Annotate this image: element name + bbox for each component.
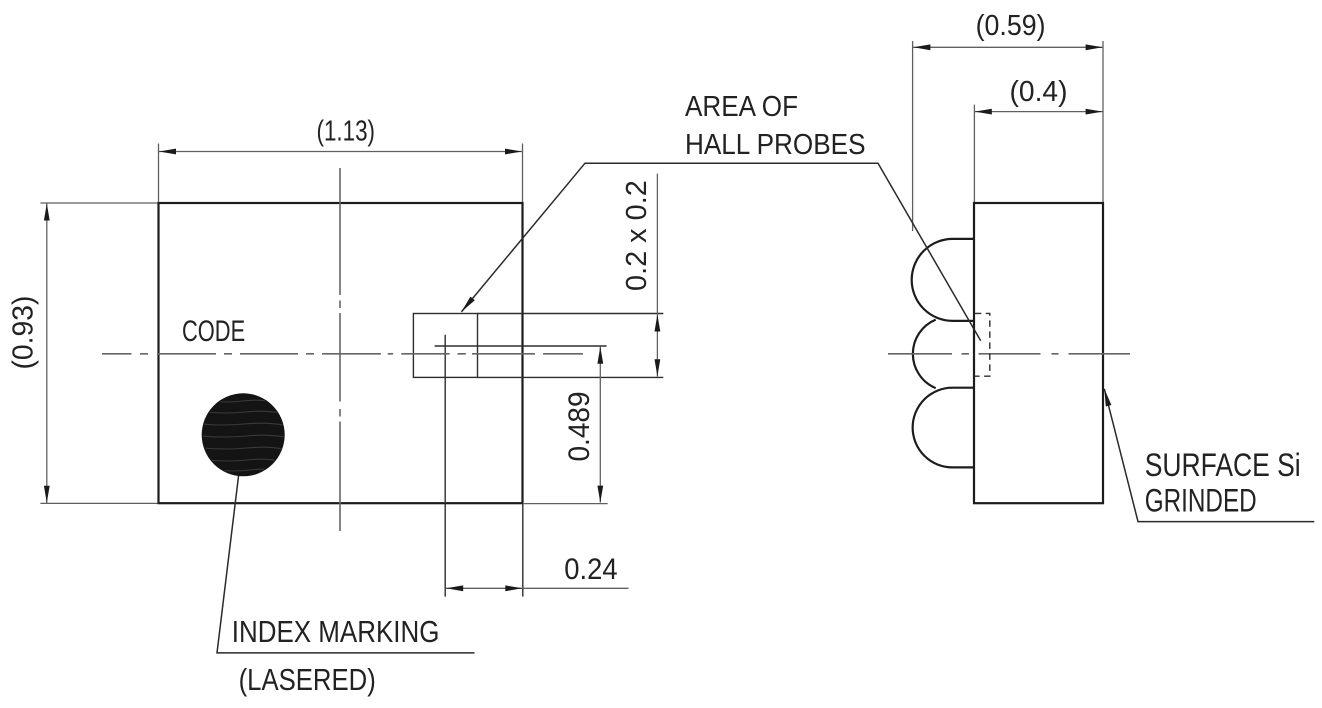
svg-text:INDEX MARKING: INDEX MARKING: [232, 614, 440, 649]
svg-text:0.24: 0.24: [564, 553, 617, 586]
svg-text:GRINDED: GRINDED: [1145, 483, 1257, 519]
svg-text:(0.93): (0.93): [8, 296, 40, 370]
svg-text:(1.13): (1.13): [317, 116, 376, 148]
svg-text:0.489: 0.489: [563, 392, 596, 462]
svg-text:AREA OF: AREA OF: [685, 91, 798, 123]
svg-text:SURFACE Si: SURFACE Si: [1145, 447, 1301, 483]
svg-text:HALL PROBES: HALL PROBES: [685, 129, 866, 161]
svg-text:(0.59): (0.59): [976, 10, 1046, 42]
svg-text:(0.4): (0.4): [1010, 76, 1068, 108]
svg-text:0.2 x 0.2: 0.2 x 0.2: [621, 180, 653, 291]
svg-text:(LASERED): (LASERED): [239, 662, 376, 697]
svg-text:CODE: CODE: [182, 315, 245, 348]
